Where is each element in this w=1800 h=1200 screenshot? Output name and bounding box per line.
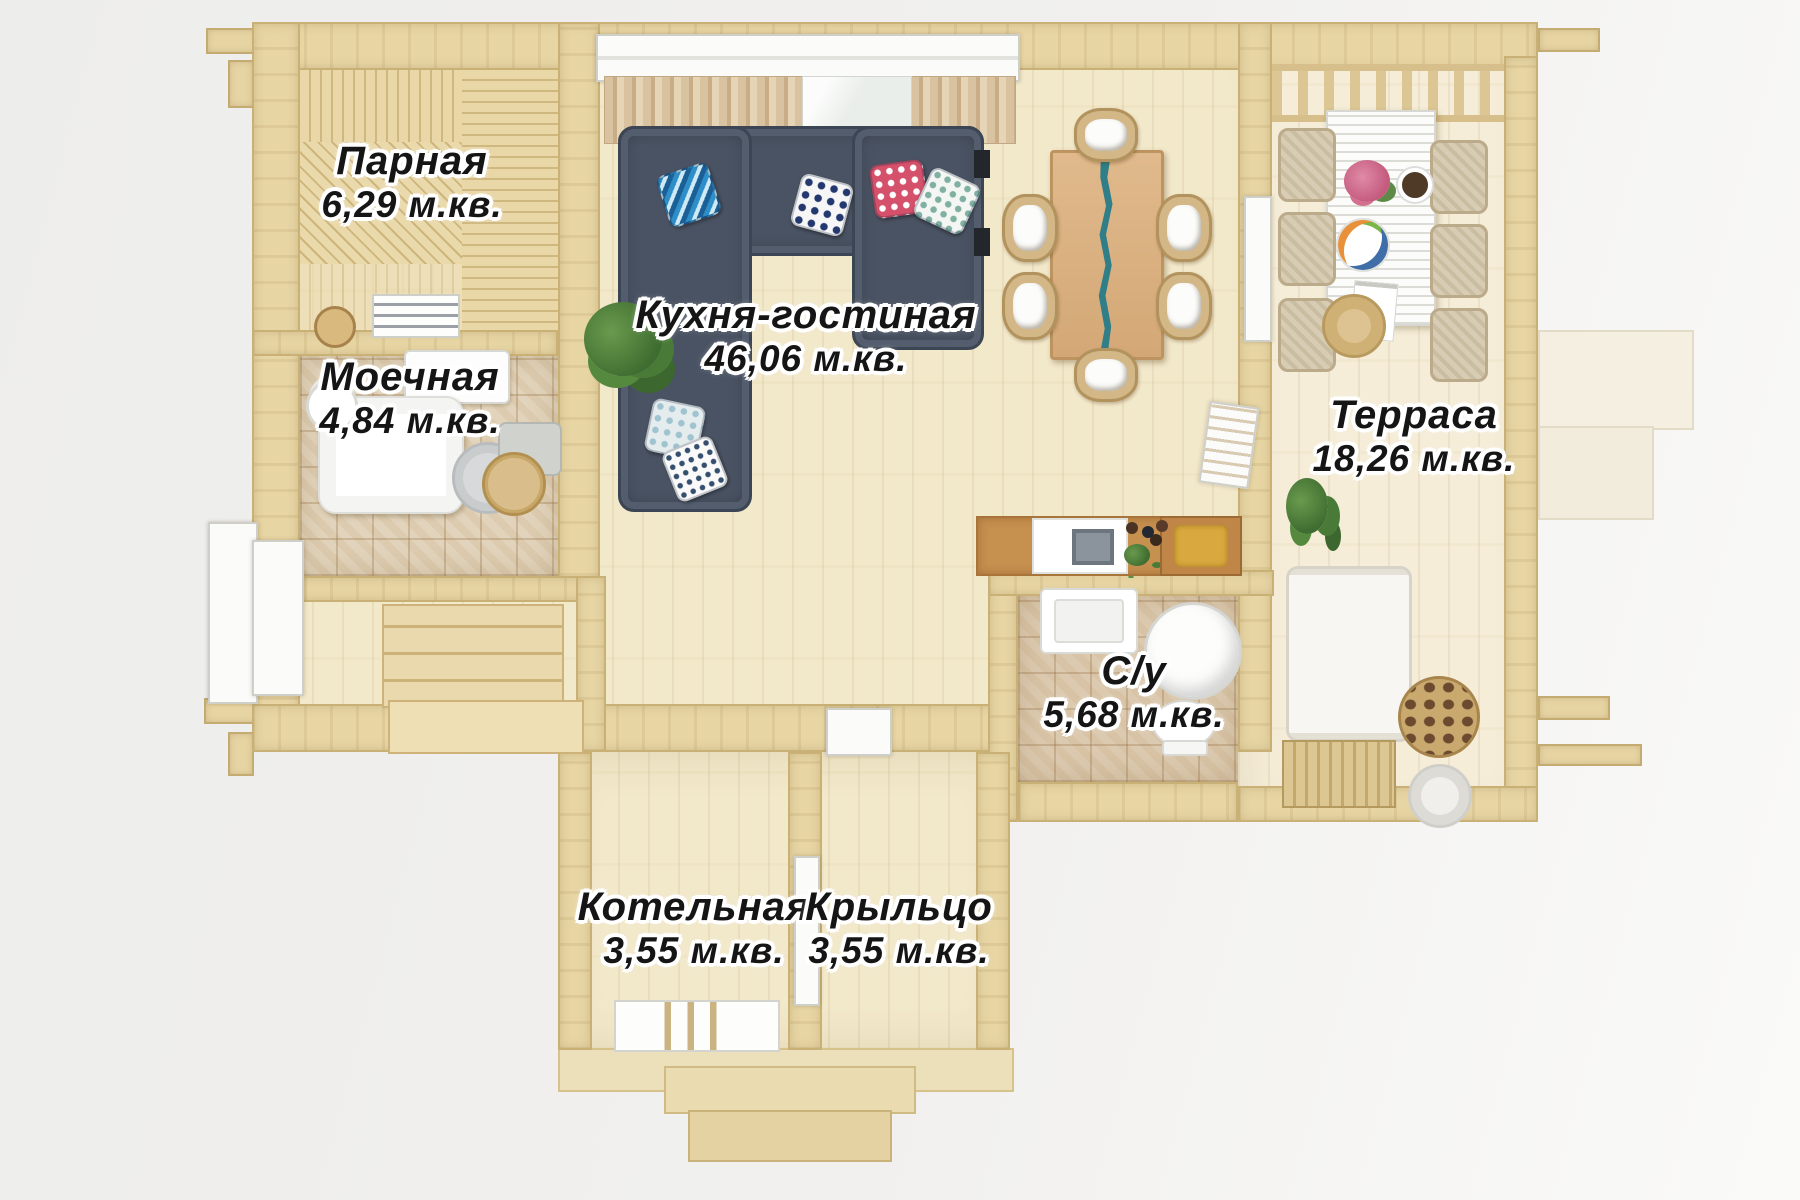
room-label-parnaya: Парная 6,29 м.кв. bbox=[321, 140, 502, 228]
room-name: Терраса bbox=[1313, 394, 1516, 437]
dining-chair bbox=[1156, 272, 1212, 340]
room-label-kuhnya: Кухня-гостиная 46,06 м.кв. bbox=[635, 294, 976, 382]
terrace-chair bbox=[1430, 224, 1488, 298]
porch-step-2 bbox=[688, 1110, 892, 1162]
log-end bbox=[206, 28, 258, 54]
wood-lid bbox=[482, 452, 546, 516]
room-area: 5,68 м.кв. bbox=[1043, 693, 1224, 737]
hall-window-frame bbox=[252, 540, 304, 696]
wall-sauna-living bbox=[558, 22, 600, 602]
pebble-table bbox=[1398, 676, 1480, 758]
room-name: Крыльцо bbox=[805, 886, 993, 929]
side-deck-lower bbox=[1538, 426, 1654, 520]
room-area: 46,06 м.кв. bbox=[635, 337, 976, 381]
log-end bbox=[228, 732, 254, 776]
log-end bbox=[1538, 744, 1642, 766]
dining-chair bbox=[1002, 194, 1058, 262]
room-area: 6,29 м.кв. bbox=[321, 183, 502, 227]
terrace-lounge-sofa bbox=[1286, 566, 1412, 742]
straw-hat bbox=[1322, 294, 1386, 358]
porch-step-1 bbox=[664, 1066, 916, 1114]
terrace-chair bbox=[1278, 128, 1336, 202]
room-label-kryltso: Крыльцо 3,55 м.кв. bbox=[805, 886, 993, 974]
dining-chair bbox=[1156, 194, 1212, 262]
wall-bottom bbox=[252, 704, 1018, 752]
dining-chair bbox=[1002, 272, 1058, 340]
dining-chair bbox=[1074, 108, 1138, 162]
sauna-bucket bbox=[314, 306, 356, 348]
porch-entry-door bbox=[826, 708, 892, 756]
room-label-su: С/у 5,68 м.кв. bbox=[1043, 650, 1224, 738]
room-area: 18,26 м.кв. bbox=[1313, 437, 1516, 481]
round-side-table bbox=[1408, 764, 1472, 828]
coffee-cup bbox=[1398, 168, 1432, 202]
room-area: 4,84 м.кв. bbox=[319, 399, 500, 443]
room-name: Парная bbox=[321, 140, 502, 183]
staircase bbox=[382, 604, 564, 708]
room-name: Моечная bbox=[319, 356, 500, 399]
log-end bbox=[1538, 28, 1600, 52]
wall-bath-bottom bbox=[1018, 782, 1238, 822]
floor-plan: Парная 6,29 м.кв. Моечная 4,84 м.кв. Кух… bbox=[0, 0, 1800, 1200]
flower-bouquet bbox=[1344, 160, 1390, 202]
log-end bbox=[1538, 696, 1610, 720]
living-window-band bbox=[596, 34, 1020, 82]
boiler-unit bbox=[614, 1000, 780, 1052]
terrace-door bbox=[1244, 196, 1272, 342]
dining-chair bbox=[1074, 348, 1138, 402]
room-label-terrasa: Терраса 18,26 м.кв. bbox=[1313, 394, 1516, 482]
kitchen-jars bbox=[1126, 522, 1138, 534]
terrace-chair bbox=[1430, 140, 1488, 214]
cooktop bbox=[1032, 518, 1128, 574]
hall-window-open-pane bbox=[208, 522, 258, 704]
room-name: Кухня-гостиная bbox=[635, 294, 976, 337]
epoxy-river bbox=[1093, 153, 1119, 357]
fruit-plate bbox=[1336, 218, 1390, 272]
room-area: 3,55 м.кв. bbox=[805, 929, 993, 973]
terrace-chair bbox=[1430, 308, 1488, 382]
wood-bench bbox=[1282, 740, 1396, 808]
kitchen-sink-gold bbox=[1160, 516, 1242, 576]
bathroom-sink bbox=[1040, 588, 1138, 654]
room-label-moechnaya: Моечная 4,84 м.кв. bbox=[319, 356, 500, 444]
side-deck-upper bbox=[1538, 330, 1694, 430]
tv-mount bbox=[974, 150, 990, 178]
toilet-tank bbox=[1162, 740, 1208, 756]
dining-table bbox=[1050, 150, 1164, 360]
tv-mount bbox=[974, 228, 990, 256]
room-name: Котельная bbox=[578, 886, 811, 929]
log-end bbox=[228, 60, 254, 108]
room-label-kotelnaya: Котельная 3,55 м.кв. bbox=[578, 886, 811, 974]
sauna-heater bbox=[372, 294, 460, 338]
counter-plant bbox=[1124, 544, 1150, 566]
room-name: С/у bbox=[1043, 650, 1224, 693]
wall-living-terrace bbox=[1238, 22, 1272, 752]
wall-wash-hall bbox=[252, 576, 600, 602]
stair-landing bbox=[388, 700, 584, 754]
terrace-chair bbox=[1278, 212, 1336, 286]
room-area: 3,55 м.кв. bbox=[578, 929, 811, 973]
terrace-door-plant bbox=[1286, 478, 1328, 534]
